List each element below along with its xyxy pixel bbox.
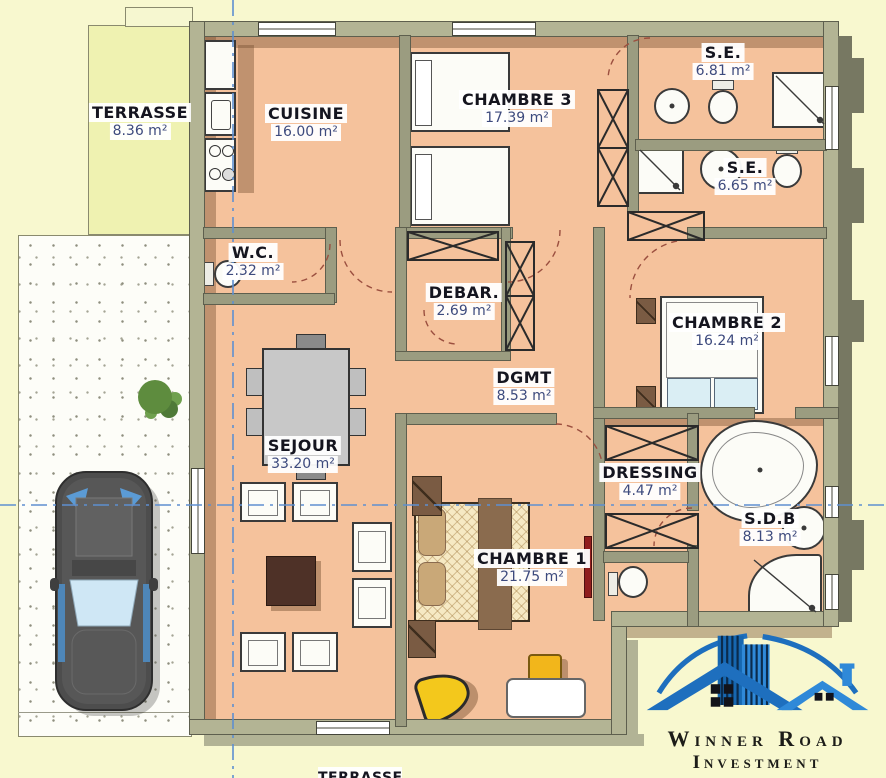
wall (396, 414, 556, 424)
logo-text-line1: Winner Road (640, 726, 875, 752)
wall (396, 228, 512, 238)
room-name: DGMT (493, 368, 554, 387)
car-top-view (50, 468, 162, 718)
nightstand (636, 298, 656, 324)
desk (506, 678, 586, 718)
wall (400, 36, 410, 232)
wall (628, 36, 638, 212)
window (825, 486, 839, 518)
room-area: 16.00 m² (271, 124, 341, 141)
kitchen-stove (204, 138, 236, 192)
room-name: CUISINE (265, 104, 347, 123)
window (316, 721, 390, 735)
window (825, 574, 839, 610)
plant-icon (138, 380, 172, 414)
room-name: S.E. (702, 43, 745, 62)
armchair (352, 522, 392, 572)
shower-icon (772, 72, 828, 128)
room-label-chambre1: CHAMBRE 1 21.75 m² (474, 549, 590, 586)
dining-chair (348, 368, 366, 396)
room-label-se-top: S.E. 6.81 m² (693, 43, 754, 80)
nightstand (408, 620, 436, 658)
room-label-debar: DEBAR. 2.69 m² (426, 283, 502, 320)
wall (594, 408, 754, 418)
window (825, 86, 839, 150)
room-label-terrasse-bottom-partial: TERRASSE (318, 767, 402, 778)
room-area: 8.13 m² (740, 529, 801, 546)
logo-windows-right (815, 693, 834, 701)
facade-pilaster (852, 168, 864, 223)
window (825, 336, 839, 386)
shadow (604, 418, 834, 426)
room-label-sejour: SEJOUR 33.20 m² (265, 436, 341, 473)
room-area: 4.47 m² (620, 483, 681, 500)
room-area: 21.75 m² (497, 569, 567, 586)
window (452, 22, 536, 36)
room-area: 6.65 m² (715, 178, 776, 195)
wall (796, 408, 838, 418)
winner-road-logo (645, 630, 870, 722)
armchair (292, 482, 338, 522)
toilet-icon (772, 154, 802, 188)
room-label-cuisine: CUISINE 16.00 m² (265, 104, 347, 141)
facade-pilaster (852, 520, 864, 570)
room-label-se-lower: S.E. 6.65 m² (715, 158, 776, 195)
room-label-chambre2: CHAMBRE 2 16.24 m² (669, 313, 785, 350)
shadow (204, 734, 644, 746)
wall (604, 552, 688, 562)
shadow (238, 45, 254, 193)
wall (688, 546, 698, 626)
coffee-table (266, 556, 316, 606)
armchair (352, 578, 392, 628)
room-name: CHAMBRE 1 (474, 549, 590, 568)
floor-plan: TERRASSE 8.36 m² CUISINE 16.00 m² CHAMBR… (0, 0, 886, 778)
wall (204, 228, 336, 238)
logo-text-line2: Investment (640, 752, 875, 774)
toilet-icon (204, 262, 214, 286)
room-area: 6.81 m² (693, 63, 754, 80)
logo-chimney (842, 667, 852, 686)
room-area: 17.39 m² (482, 110, 552, 127)
room-name: DRESSING (599, 463, 700, 482)
armchair (240, 482, 286, 522)
terrace-chimney-nub (125, 7, 193, 27)
wall (612, 626, 626, 734)
wall (190, 720, 626, 734)
window (191, 468, 205, 554)
facade-pilaster (852, 300, 864, 342)
wall (502, 228, 510, 360)
toilet-icon (608, 572, 618, 596)
wall (612, 612, 838, 626)
room-label-chambre3: CHAMBRE 3 17.39 m² (459, 90, 575, 127)
wall (326, 228, 336, 302)
room-label-terrasse: TERRASSE 8.36 m² (89, 103, 191, 140)
room-label-sdb: S.D.B 8.13 m² (740, 509, 801, 546)
room-area: 8.53 m² (494, 388, 555, 405)
toilet-icon (712, 80, 734, 90)
armchair (292, 632, 338, 672)
facade-pilaster (852, 58, 864, 113)
window (258, 22, 336, 36)
wall (190, 22, 204, 734)
room-area: 33.20 m² (268, 456, 338, 473)
room-name: W.C. (229, 243, 277, 262)
washbasin-icon (654, 88, 690, 124)
room-name: SEJOUR (265, 436, 341, 455)
wall (594, 228, 604, 620)
room-area: 16.24 m² (692, 333, 762, 350)
nightstand (412, 476, 442, 516)
kitchen-counter (204, 40, 236, 90)
toilet-icon (618, 566, 648, 598)
wall (204, 294, 334, 304)
room-label-wc: W.C. 2.32 m² (223, 243, 284, 280)
room-name: TERRASSE (89, 103, 191, 122)
room-name: S.E. (724, 158, 767, 177)
room-area: 2.32 m² (223, 263, 284, 280)
room-name: CHAMBRE 3 (459, 90, 575, 109)
room-label-dressing: DRESSING 4.47 m² (599, 463, 700, 500)
room-area: 8.36 m² (110, 123, 171, 140)
kitchen-sink (204, 92, 236, 136)
armchair (240, 632, 286, 672)
single-bed (410, 146, 510, 226)
wall (636, 140, 826, 150)
dining-chair (348, 408, 366, 436)
room-name: CHAMBRE 2 (669, 313, 785, 332)
shower-icon (636, 146, 684, 194)
shadow (626, 640, 638, 734)
wall (396, 228, 406, 360)
toilet-icon (708, 90, 738, 124)
room-label-dgmt: DGMT 8.53 m² (493, 368, 554, 405)
room-name: S.D.B (741, 509, 799, 528)
wall (396, 414, 406, 726)
facade-band (838, 36, 852, 622)
wall (688, 228, 826, 238)
wall (396, 352, 510, 360)
room-name: DEBAR. (426, 283, 502, 302)
room-area: 2.69 m² (434, 303, 495, 320)
